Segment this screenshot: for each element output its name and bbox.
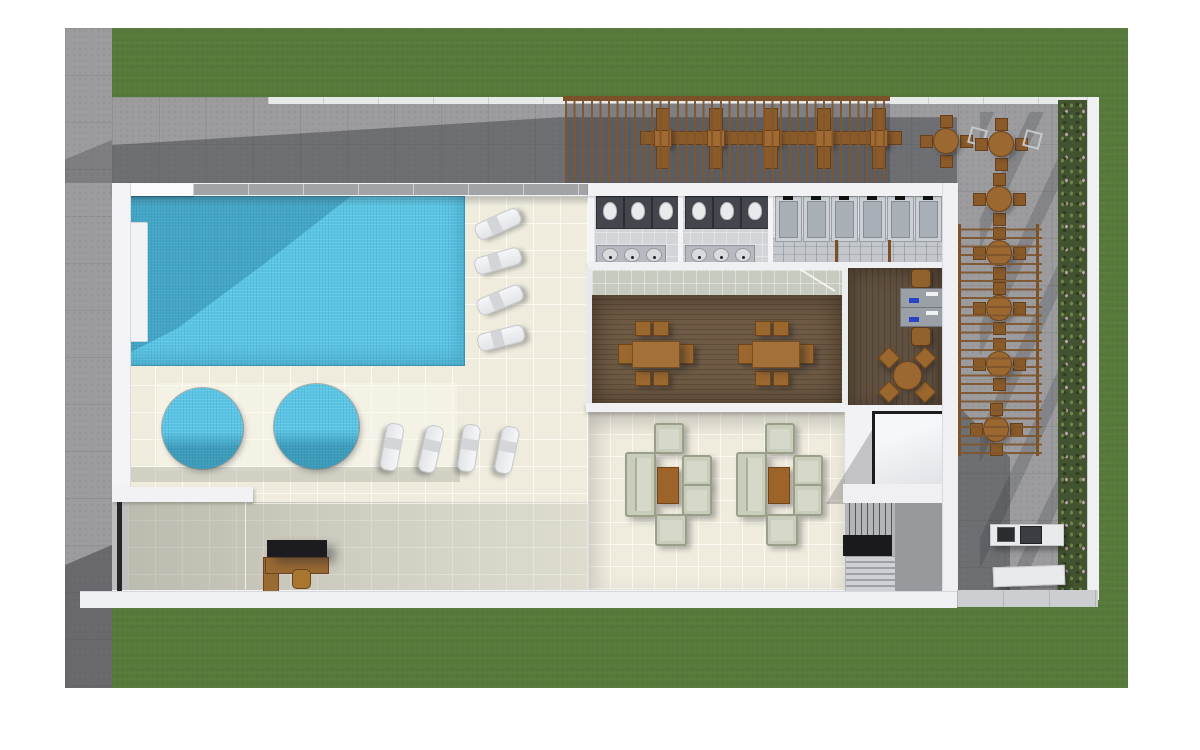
spa-pool (274, 384, 359, 469)
wall (678, 196, 683, 262)
dining-chair (618, 344, 633, 364)
dining-chair (773, 371, 789, 386)
dining-chair (738, 344, 753, 364)
pool-wall-coping (193, 184, 590, 195)
dining-chair (653, 321, 669, 336)
armchair (793, 484, 823, 516)
spa-shadow (274, 384, 359, 469)
armchair (655, 514, 687, 546)
wall (768, 196, 773, 262)
sink (602, 248, 618, 262)
dining-chair (635, 321, 651, 336)
dining-chair (773, 321, 789, 336)
wall (842, 268, 848, 412)
dining-chair (799, 344, 814, 364)
elevator-shaft (872, 411, 947, 490)
toilet (631, 202, 645, 220)
toilet (720, 202, 734, 220)
floor-plan-canvas (0, 0, 1200, 750)
bbq-grill (1020, 526, 1042, 544)
garden-wall (1087, 97, 1099, 600)
reception-chair (292, 569, 311, 589)
deck-shadow (128, 196, 588, 206)
stool (995, 158, 1008, 171)
right-pergola-slats (956, 226, 1042, 454)
toilet (748, 202, 762, 220)
shower-stall (915, 196, 942, 242)
stool (940, 115, 953, 128)
wall (80, 591, 957, 608)
shower-stall (831, 196, 858, 242)
dining-chair (679, 344, 694, 364)
wall (586, 268, 592, 412)
toilet (692, 202, 706, 220)
stool (920, 135, 933, 148)
sink (624, 248, 640, 262)
armchair (793, 455, 823, 487)
terrace-curb (957, 590, 1098, 607)
round-table (933, 128, 959, 154)
toilet (603, 202, 617, 220)
wall (588, 183, 957, 196)
spa-shadow (162, 388, 243, 469)
wall (586, 403, 845, 412)
hedge-planter (1058, 100, 1087, 592)
shower-stall (887, 196, 914, 242)
stool (995, 118, 1008, 131)
garden-bench (993, 565, 1066, 588)
wall (843, 484, 942, 503)
armchair (682, 455, 712, 487)
stool (975, 138, 988, 151)
shower-stall (775, 196, 802, 242)
coffee-table (768, 467, 790, 504)
dining-chair (635, 371, 651, 386)
stool (973, 193, 986, 206)
stool (993, 213, 1006, 226)
reception-counter-top (267, 540, 327, 557)
shower-stall (803, 196, 830, 242)
stool (993, 173, 1006, 186)
shower-stall (859, 196, 886, 242)
stool (1013, 193, 1026, 206)
coffee-table (657, 467, 679, 504)
pool-ledge-bench (130, 222, 148, 342)
glass-balustrade (117, 502, 122, 591)
sink (646, 248, 662, 262)
stair-landing (843, 535, 892, 556)
stool (940, 155, 953, 168)
wall (112, 183, 131, 502)
locker-bench (835, 240, 838, 262)
stair-railing (849, 503, 895, 536)
armchair (682, 484, 712, 516)
computer-desk (900, 288, 943, 308)
sofa (736, 452, 767, 517)
dining-table (752, 341, 800, 368)
stair-steps (846, 556, 895, 591)
wall (588, 183, 594, 270)
deck-shadow-band (128, 467, 460, 482)
dining-table (632, 341, 680, 368)
sidewalk-shadow (65, 545, 112, 688)
sofa (625, 452, 656, 517)
round-table (988, 131, 1014, 157)
sink (713, 248, 729, 262)
deck-shadow (112, 502, 588, 590)
glass-railing (253, 503, 588, 504)
bbq-sink (997, 527, 1015, 542)
game-table (893, 361, 922, 390)
wall (942, 183, 958, 607)
dining-chair (755, 321, 771, 336)
spa-pool (162, 388, 243, 469)
armchair (654, 423, 684, 454)
wall (112, 487, 253, 502)
toilet (659, 202, 673, 220)
sink (691, 248, 707, 262)
glass-railing (245, 502, 246, 590)
computer-desk (900, 307, 943, 327)
armchair (766, 514, 798, 546)
office-chair (911, 327, 931, 346)
sink (735, 248, 751, 262)
armchair (765, 423, 795, 454)
round-table (986, 186, 1012, 212)
locker-bench (888, 240, 891, 262)
dining-chair (755, 371, 771, 386)
upper-pergola-slats (565, 101, 888, 182)
office-chair (911, 269, 931, 288)
dining-chair (653, 371, 669, 386)
stair-shaft-wall (895, 503, 942, 591)
